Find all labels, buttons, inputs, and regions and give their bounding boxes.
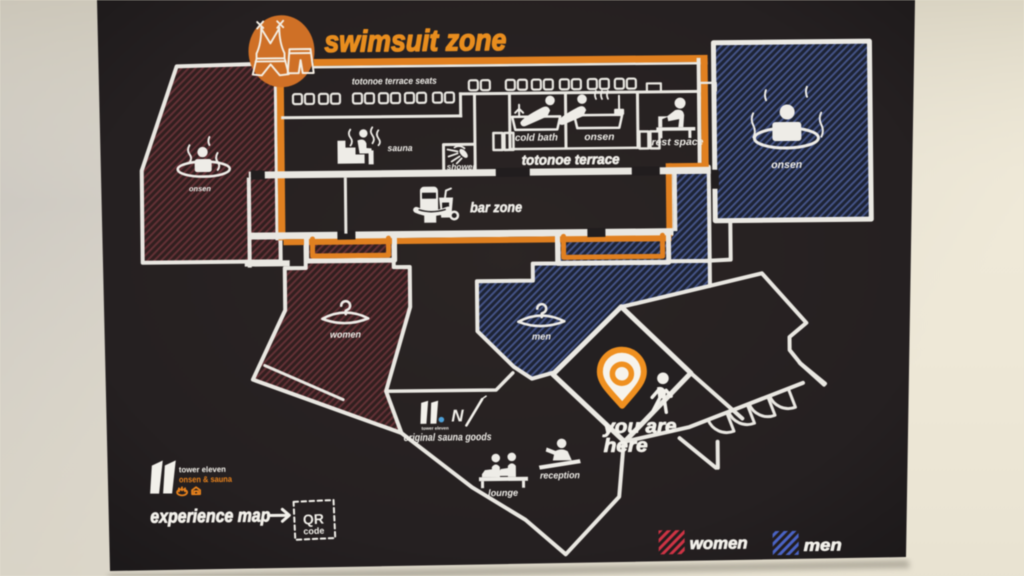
svg-text:women: women <box>690 534 748 553</box>
svg-text:onsen: onsen <box>771 159 802 171</box>
svg-text:men: men <box>532 331 551 342</box>
svg-text:bar zone: bar zone <box>470 199 522 216</box>
svg-text:experience map: experience map <box>150 504 270 526</box>
svg-text:code: code <box>303 525 324 536</box>
svg-text:reception: reception <box>540 470 580 481</box>
svg-text:men: men <box>804 536 842 554</box>
svg-text:tower eleven: tower eleven <box>179 465 226 474</box>
svg-text:swimsuit zone: swimsuit zone <box>324 24 506 59</box>
svg-text:totonoe terrace seats: totonoe terrace seats <box>352 76 437 88</box>
svg-text:onsen & sauna: onsen & sauna <box>179 474 232 485</box>
svg-text:totonoe terrace: totonoe terrace <box>522 151 620 168</box>
svg-text:women: women <box>330 329 361 340</box>
svg-text:here: here <box>604 435 649 456</box>
svg-text:onsen: onsen <box>189 184 212 193</box>
svg-text:cold bath: cold bath <box>515 132 558 143</box>
svg-text:lounge: lounge <box>488 488 519 499</box>
svg-text:sauna: sauna <box>387 143 412 153</box>
svg-text:tower eleven: tower eleven <box>421 426 449 431</box>
svg-text:N: N <box>451 406 464 425</box>
svg-text:shower: shower <box>447 162 477 171</box>
svg-text:rest space: rest space <box>651 137 704 149</box>
svg-text:original sauna goods: original sauna goods <box>403 431 491 444</box>
svg-text:onsen: onsen <box>584 132 614 143</box>
